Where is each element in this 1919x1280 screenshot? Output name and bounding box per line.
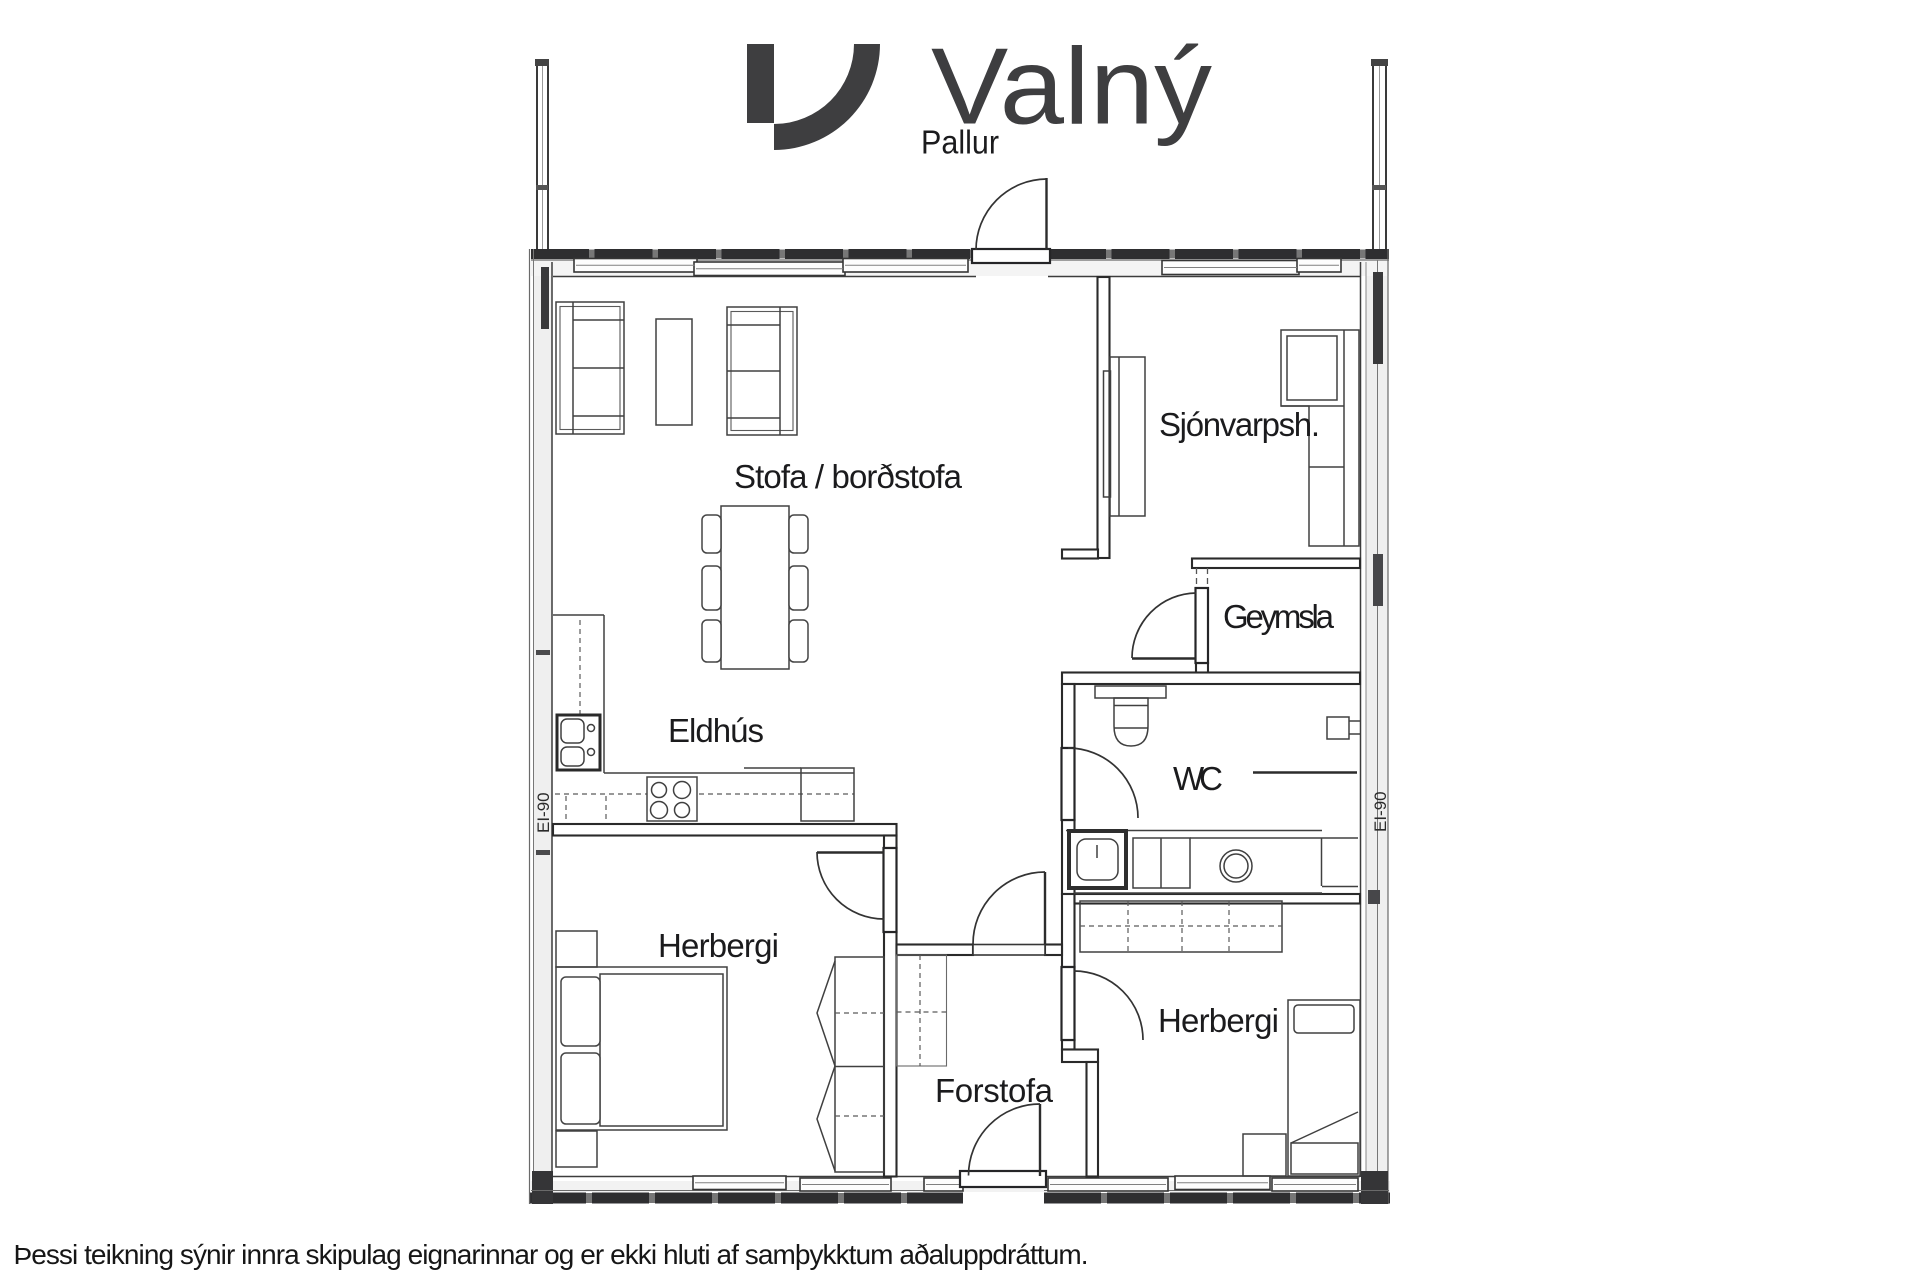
svg-text:EI-90: EI-90 [1371, 791, 1390, 832]
svg-text:Pallur: Pallur [921, 125, 999, 162]
svg-text:Herbergi: Herbergi [658, 927, 779, 964]
svg-text:Forstofa: Forstofa [935, 1072, 1054, 1109]
svg-text:Þessi teikning sýnir innra ski: Þessi teikning sýnir innra skipulag eign… [14, 1239, 1089, 1270]
svg-text:EI-90: EI-90 [534, 792, 553, 833]
svg-text:Stofa / borðstofa: Stofa / borðstofa [734, 458, 963, 495]
svg-text:WC: WC [1173, 760, 1223, 797]
svg-text:Herbergi: Herbergi [1158, 1002, 1279, 1039]
svg-text:Geymsla: Geymsla [1223, 598, 1335, 635]
svg-text:Sjónvarpsh.: Sjónvarpsh. [1159, 406, 1320, 443]
svg-text:Eldhús: Eldhús [668, 712, 764, 749]
